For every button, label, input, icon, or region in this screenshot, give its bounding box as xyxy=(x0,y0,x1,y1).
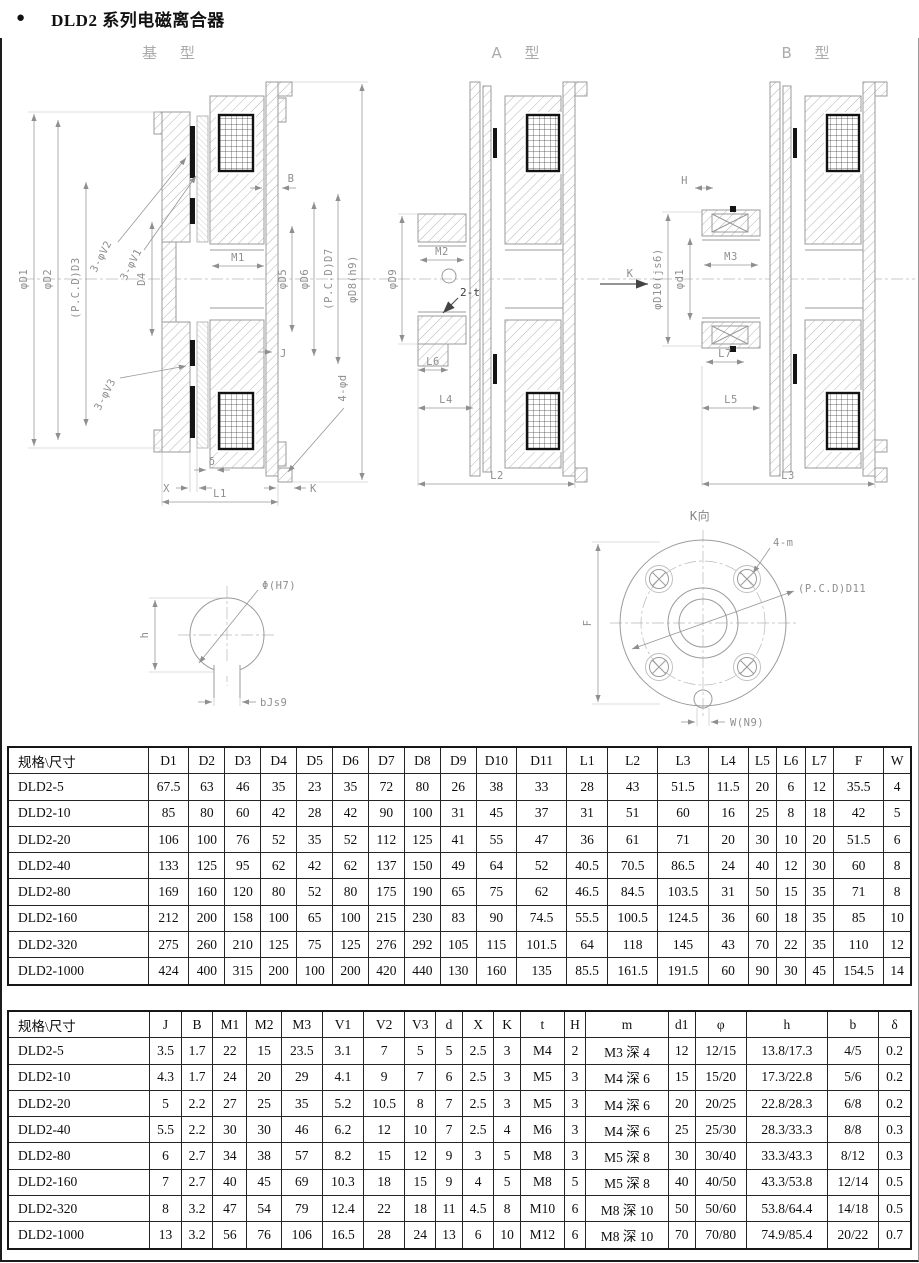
table-cell: 100 xyxy=(297,958,333,985)
table-cell: 3 xyxy=(564,1143,585,1169)
table-cell: 18 xyxy=(805,800,833,826)
dim-pcdD7: (P.C.D)D7 xyxy=(323,248,335,309)
column-header: D8 xyxy=(404,747,440,774)
table-cell: 4.1 xyxy=(322,1064,363,1090)
column-header: b xyxy=(827,1011,878,1038)
dim-L3: L3 xyxy=(781,470,795,482)
table-row: DLD2-8062.73438578.21512935M83M5 深 83030… xyxy=(8,1143,911,1169)
table-cell: 100 xyxy=(404,800,440,826)
table-cell: 20 xyxy=(708,826,748,852)
table-cell: 36 xyxy=(567,826,608,852)
dim-phiD9: φD9 xyxy=(387,269,399,289)
dimension-table-1: 规格\尺寸D1D2D3D4D5D6D7D8D9D10D11L1L2L3L4L5L… xyxy=(7,746,912,986)
table-cell: 55 xyxy=(476,826,516,852)
table-cell: 40.5 xyxy=(567,853,608,879)
table-cell: M10 xyxy=(520,1196,564,1222)
column-header: H xyxy=(564,1011,585,1038)
table-cell: 31 xyxy=(440,800,476,826)
table-cell: 137 xyxy=(368,853,404,879)
table-cell: 13 xyxy=(436,1222,463,1249)
table-cell: 80 xyxy=(189,800,225,826)
table-cell: 35 xyxy=(805,879,833,905)
table-cell: 90 xyxy=(748,958,776,985)
table-cell: 25/30 xyxy=(695,1117,746,1143)
column-header: W xyxy=(884,747,911,774)
table-cell: 2.7 xyxy=(181,1169,212,1195)
table-cell: 200 xyxy=(261,958,297,985)
table-cell: 9 xyxy=(436,1169,463,1195)
table-cell: 7 xyxy=(405,1064,436,1090)
table-cell: 40 xyxy=(668,1169,695,1195)
table-cell: 8/8 xyxy=(827,1117,878,1143)
shaft-bore-detail: Φ(H7) h bJs9 xyxy=(139,580,296,709)
table-cell: 3 xyxy=(462,1143,493,1169)
dim-phiD2: φD2 xyxy=(42,269,54,289)
table-cell: 42 xyxy=(297,853,333,879)
dim-4m: 4-m xyxy=(773,537,793,549)
column-header: D11 xyxy=(516,747,566,774)
table-cell: 30 xyxy=(213,1117,247,1143)
row-header: DLD2-320 xyxy=(8,1196,150,1222)
table-cell: 150 xyxy=(404,853,440,879)
dim-L5: L5 xyxy=(724,394,738,406)
table-cell: 2.2 xyxy=(181,1090,212,1116)
table-cell: 35 xyxy=(261,774,297,800)
table-cell: 115 xyxy=(476,932,516,958)
table-cell: 74.9/85.4 xyxy=(747,1222,828,1249)
table-cell: 47 xyxy=(213,1196,247,1222)
table-cell: 35 xyxy=(805,905,833,931)
table-cell: 120 xyxy=(225,879,261,905)
table-cell: 5.5 xyxy=(150,1117,181,1143)
table-cell: 12 xyxy=(777,853,805,879)
table-cell: 43 xyxy=(708,932,748,958)
column-header: D4 xyxy=(261,747,297,774)
table-cell: 7 xyxy=(150,1169,181,1195)
table-row: DLD2-1000133.2567610616.5282413610M126M8… xyxy=(8,1222,911,1249)
column-header: X xyxy=(462,1011,493,1038)
table-cell: 20 xyxy=(748,774,776,800)
table-cell: 90 xyxy=(476,905,516,931)
table-cell: 45 xyxy=(476,800,516,826)
table-row: DLD2-53.51.7221523.53.17552.53M42M3 深 41… xyxy=(8,1038,911,1064)
row-header: DLD2-1000 xyxy=(8,958,148,985)
table-cell: 110 xyxy=(834,932,884,958)
table-cell: 100 xyxy=(261,905,297,931)
table-cell: 125 xyxy=(189,853,225,879)
column-header: M1 xyxy=(213,1011,247,1038)
table-cell: 0.2 xyxy=(879,1090,911,1116)
table-cell: 40 xyxy=(748,853,776,879)
table-cell: 40/50 xyxy=(695,1169,746,1195)
column-header: D5 xyxy=(297,747,333,774)
column-header: V1 xyxy=(322,1011,363,1038)
table-cell: 210 xyxy=(225,932,261,958)
table-cell: 80 xyxy=(333,879,369,905)
column-header: t xyxy=(520,1011,564,1038)
column-header: L3 xyxy=(658,747,708,774)
table-cell: 6 xyxy=(462,1222,493,1249)
table-cell: 33.3/43.3 xyxy=(747,1143,828,1169)
table-cell: 24 xyxy=(213,1064,247,1090)
table-cell: 50 xyxy=(668,1196,695,1222)
table-cell: 14/18 xyxy=(827,1196,878,1222)
table-cell: M4 xyxy=(520,1038,564,1064)
dim-3phiV2: 3-φV2 xyxy=(88,239,115,275)
table-cell: 43.3/53.8 xyxy=(747,1169,828,1195)
table-cell: 86.5 xyxy=(658,853,708,879)
dim-pcdD3: (P.C.D)D3 xyxy=(70,257,82,318)
table-cell: 35 xyxy=(333,774,369,800)
table-cell: 31 xyxy=(708,879,748,905)
table-cell: 5/6 xyxy=(827,1064,878,1090)
table-cell: 0.3 xyxy=(879,1117,911,1143)
column-header: F xyxy=(834,747,884,774)
table-cell: 30 xyxy=(247,1117,281,1143)
table-cell: 12/14 xyxy=(827,1169,878,1195)
column-header: L7 xyxy=(805,747,833,774)
table-cell: 0.7 xyxy=(879,1222,911,1249)
table-cell: 30 xyxy=(805,853,833,879)
dim-D4: D4 xyxy=(136,272,148,286)
table-cell: 71 xyxy=(658,826,708,852)
table-cell: 12.4 xyxy=(322,1196,363,1222)
table-cell: 11.5 xyxy=(708,774,748,800)
table-cell: 230 xyxy=(404,905,440,931)
table-cell: 2.2 xyxy=(181,1117,212,1143)
table-cell: 71 xyxy=(834,879,884,905)
table-cell: 8.2 xyxy=(322,1143,363,1169)
dim-L7: L7 xyxy=(718,348,732,360)
table-cell: 22.8/28.3 xyxy=(747,1090,828,1116)
dim-phiD8: φD8(h9) xyxy=(347,255,359,303)
dim-L1: L1 xyxy=(213,488,227,500)
table-cell: 35 xyxy=(281,1090,322,1116)
dim-4phid: 4-φd xyxy=(337,374,349,401)
column-header: d1 xyxy=(668,1011,695,1038)
table-cell: 440 xyxy=(404,958,440,985)
table-cell: 0.2 xyxy=(879,1038,911,1064)
table-cell: 16 xyxy=(708,800,748,826)
table-cell: 5 xyxy=(564,1169,585,1195)
table-cell: 60 xyxy=(834,853,884,879)
table-cell: 47 xyxy=(516,826,566,852)
table-cell: 28 xyxy=(297,800,333,826)
table-cell: 200 xyxy=(189,905,225,931)
table-cell: 3.1 xyxy=(322,1038,363,1064)
table-cell: 75 xyxy=(476,879,516,905)
page-title: ● DLD2 系列电磁离合器 xyxy=(16,6,225,31)
dim-F: F xyxy=(582,620,594,627)
table-row: DLD2-405.52.23030466.2121072.54M63M4 深 6… xyxy=(8,1117,911,1143)
dim-WN9: W(N9) xyxy=(730,717,764,729)
table-cell: 70 xyxy=(668,1222,695,1249)
table-cell: 12 xyxy=(805,774,833,800)
row-header: DLD2-20 xyxy=(8,1090,150,1116)
table-cell: 43 xyxy=(607,774,657,800)
table-cell: 35 xyxy=(805,932,833,958)
table-cell: 60 xyxy=(748,905,776,931)
table-cell: 2.7 xyxy=(181,1143,212,1169)
table-cell: 46.5 xyxy=(567,879,608,905)
table-cell: 38 xyxy=(247,1143,281,1169)
table-cell: M4 深 6 xyxy=(586,1117,669,1143)
column-header: M3 xyxy=(281,1011,322,1038)
table-cell: 106 xyxy=(148,826,189,852)
table-cell: 62 xyxy=(261,853,297,879)
table-cell: 6 xyxy=(777,774,805,800)
table-cell: 60 xyxy=(708,958,748,985)
table-cell: M4 深 6 xyxy=(586,1090,669,1116)
table-row: DLD2-2052.22725355.210.5872.53M53M4 深 62… xyxy=(8,1090,911,1116)
table-cell: 315 xyxy=(225,958,261,985)
table-cell: 12 xyxy=(884,932,911,958)
table-cell: 51 xyxy=(607,800,657,826)
dim-K-gap: K xyxy=(310,483,317,495)
table-cell: 4 xyxy=(462,1169,493,1195)
table-cell: 51.5 xyxy=(658,774,708,800)
table-cell: 8 xyxy=(405,1090,436,1116)
dim-M3: M3 xyxy=(724,251,738,263)
table-cell: 200 xyxy=(333,958,369,985)
table-cell: M4 深 6 xyxy=(586,1064,669,1090)
table-cell: 15 xyxy=(405,1169,436,1195)
table-cell: 2.5 xyxy=(462,1038,493,1064)
table-cell: 0.5 xyxy=(879,1196,911,1222)
column-header: L5 xyxy=(748,747,776,774)
table-cell: 75 xyxy=(297,932,333,958)
a-type-drawing: A 型 xyxy=(387,44,660,488)
table-cell: 72 xyxy=(368,774,404,800)
table-row: DLD2-20106100765235521121254155473661712… xyxy=(8,826,911,852)
table-cell: 69 xyxy=(281,1169,322,1195)
k-view-title: K向 xyxy=(690,508,710,523)
table-cell: 42 xyxy=(834,800,884,826)
table-cell: M8 xyxy=(520,1143,564,1169)
table-cell: 51.5 xyxy=(834,826,884,852)
row-header: DLD2-10 xyxy=(8,1064,150,1090)
dim-M2: M2 xyxy=(435,246,449,258)
row-header: DLD2-40 xyxy=(8,1117,150,1143)
b-type-geometry xyxy=(660,82,915,482)
table-cell: 36 xyxy=(708,905,748,931)
table-row: DLD2-8016916012080528017519065756246.584… xyxy=(8,879,911,905)
table-cell: 12/15 xyxy=(695,1038,746,1064)
row-header: DLD2-80 xyxy=(8,1143,150,1169)
table-cell: 67.5 xyxy=(148,774,189,800)
table-cell: 6 xyxy=(564,1222,585,1249)
column-header: D9 xyxy=(440,747,476,774)
table-cell: 3 xyxy=(564,1117,585,1143)
column-header: V2 xyxy=(364,1011,405,1038)
table-cell: 158 xyxy=(225,905,261,931)
table-cell: 6 xyxy=(436,1064,463,1090)
row-header: DLD2-20 xyxy=(8,826,148,852)
table-cell: M5 深 8 xyxy=(586,1169,669,1195)
table-cell: 54 xyxy=(247,1196,281,1222)
column-header: D1 xyxy=(148,747,189,774)
column-header: h xyxy=(747,1011,828,1038)
table-cell: 90 xyxy=(368,800,404,826)
table-cell: 260 xyxy=(189,932,225,958)
table-cell: 100 xyxy=(333,905,369,931)
table-cell: 28 xyxy=(364,1222,405,1249)
row-header: DLD2-40 xyxy=(8,853,148,879)
table-cell: 3.2 xyxy=(181,1222,212,1249)
dim-phiD5: φD5 xyxy=(277,269,289,289)
row-header: DLD2-5 xyxy=(8,774,148,800)
table-cell: 3 xyxy=(494,1090,521,1116)
table-cell: 175 xyxy=(368,879,404,905)
row-header: DLD2-10 xyxy=(8,800,148,826)
table-cell: 10 xyxy=(405,1117,436,1143)
table-cell: 6 xyxy=(564,1196,585,1222)
table-cell: 3 xyxy=(564,1064,585,1090)
page-title-text: DLD2 系列电磁离合器 xyxy=(51,6,225,31)
table-cell: 13 xyxy=(150,1222,181,1249)
table-cell: 22 xyxy=(213,1038,247,1064)
table-cell: 9 xyxy=(436,1143,463,1169)
table-cell: 52 xyxy=(333,826,369,852)
row-header: DLD2-160 xyxy=(8,1169,150,1195)
column-header: φ xyxy=(695,1011,746,1038)
column-header: 规格\尺寸 xyxy=(8,1011,150,1038)
dim-phiD10: φD10(js6) xyxy=(652,248,664,309)
dim-phiD1: φD1 xyxy=(18,269,30,289)
column-header: D3 xyxy=(225,747,261,774)
b-type-title: B 型 xyxy=(781,44,838,62)
table-row: DLD2-10004244003152001002004204401301601… xyxy=(8,958,911,985)
table-cell: 23.5 xyxy=(281,1038,322,1064)
table-cell: 37 xyxy=(516,800,566,826)
table-cell: 5 xyxy=(436,1038,463,1064)
table-cell: 64 xyxy=(476,853,516,879)
table-cell: 7 xyxy=(364,1038,405,1064)
table-cell: 13.8/17.3 xyxy=(747,1038,828,1064)
table-cell: 8 xyxy=(884,853,911,879)
table-cell: 160 xyxy=(476,958,516,985)
table-row: DLD2-16072.740456910.31815945M85M5 深 840… xyxy=(8,1169,911,1195)
header-row: 规格\尺寸D1D2D3D4D5D6D7D8D9D10D11L1L2L3L4L5L… xyxy=(8,747,911,774)
table-cell: 24 xyxy=(405,1222,436,1249)
table-cell: 85.5 xyxy=(567,958,608,985)
table-cell: 420 xyxy=(368,958,404,985)
table-cell: 12 xyxy=(668,1038,695,1064)
column-header: L2 xyxy=(607,747,657,774)
table-cell: 18 xyxy=(405,1196,436,1222)
table-cell: 20 xyxy=(247,1064,281,1090)
table-cell: 1.7 xyxy=(181,1038,212,1064)
table-cell: 83 xyxy=(440,905,476,931)
table-cell: 1.7 xyxy=(181,1064,212,1090)
table-cell: 3 xyxy=(564,1090,585,1116)
dim-M1: M1 xyxy=(231,252,245,264)
table-cell: 6.2 xyxy=(322,1117,363,1143)
table-cell: 85 xyxy=(834,905,884,931)
table-cell: 14 xyxy=(884,958,911,985)
table-cell: 50 xyxy=(748,879,776,905)
table-cell: 30 xyxy=(777,958,805,985)
table-cell: 74.5 xyxy=(516,905,566,931)
table-cell: 2.5 xyxy=(462,1090,493,1116)
table-cell: 52 xyxy=(516,853,566,879)
table-cell: 6 xyxy=(884,826,911,852)
dim-H: H xyxy=(681,175,688,187)
column-header: D10 xyxy=(476,747,516,774)
row-header: DLD2-5 xyxy=(8,1038,150,1064)
table-cell: 5 xyxy=(494,1169,521,1195)
column-header: D6 xyxy=(333,747,369,774)
table-cell: 4.3 xyxy=(150,1064,181,1090)
table-cell: 8/12 xyxy=(827,1143,878,1169)
table-cell: 5 xyxy=(150,1090,181,1116)
table-cell: 18 xyxy=(777,905,805,931)
dim-2t: 2-t xyxy=(460,286,480,299)
table-cell: 62 xyxy=(516,879,566,905)
table-cell: 25 xyxy=(668,1117,695,1143)
table-cell: 70/80 xyxy=(695,1222,746,1249)
table-cell: 95 xyxy=(225,853,261,879)
table-cell: 5 xyxy=(405,1038,436,1064)
a-type-title: A 型 xyxy=(491,44,548,62)
table-cell: 42 xyxy=(333,800,369,826)
table-cell: 52 xyxy=(261,826,297,852)
table-cell: 4.5 xyxy=(462,1196,493,1222)
table-cell: M5 xyxy=(520,1064,564,1090)
table-row: DLD2-567.563463523357280263833284351.511… xyxy=(8,774,911,800)
table-cell: 25 xyxy=(247,1090,281,1116)
table-cell: 26 xyxy=(440,774,476,800)
table-cell: 55.5 xyxy=(567,905,608,931)
column-header: δ xyxy=(879,1011,911,1038)
table-cell: M5 xyxy=(520,1090,564,1116)
table-cell: 28.3/33.3 xyxy=(747,1117,828,1143)
column-header: d xyxy=(436,1011,463,1038)
table-cell: 106 xyxy=(281,1222,322,1249)
table-cell: 65 xyxy=(440,879,476,905)
row-header: DLD2-320 xyxy=(8,932,148,958)
table-cell: 33 xyxy=(516,774,566,800)
table-cell: 85 xyxy=(148,800,189,826)
table-cell: 56 xyxy=(213,1222,247,1249)
table-cell: 145 xyxy=(658,932,708,958)
table-cell: 29 xyxy=(281,1064,322,1090)
table-cell: 5.2 xyxy=(322,1090,363,1116)
table-cell: 100 xyxy=(189,826,225,852)
table-row: DLD2-104.31.72420294.19762.53M53M4 深 615… xyxy=(8,1064,911,1090)
table-cell: 215 xyxy=(368,905,404,931)
table-row: DLD2-32027526021012575125276292105115101… xyxy=(8,932,911,958)
table-cell: 118 xyxy=(607,932,657,958)
k-view-drawing: K向 4-m (P.C.D)D11 F xyxy=(582,508,866,729)
table-row: DLD2-401331259562426213715049645240.570.… xyxy=(8,853,911,879)
table-cell: 101.5 xyxy=(516,932,566,958)
table-cell: 15 xyxy=(247,1038,281,1064)
table-cell: 61 xyxy=(607,826,657,852)
table-cell: 8 xyxy=(884,879,911,905)
column-header: 规格\尺寸 xyxy=(8,747,148,774)
table-cell: 22 xyxy=(777,932,805,958)
table-cell: 60 xyxy=(225,800,261,826)
b-type-drawing: B 型 xyxy=(652,44,915,488)
table-cell: 133 xyxy=(148,853,189,879)
table-cell: 41 xyxy=(440,826,476,852)
table-cell: 5 xyxy=(494,1143,521,1169)
table-cell: 3.5 xyxy=(150,1038,181,1064)
column-header: J xyxy=(150,1011,181,1038)
table-cell: 191.5 xyxy=(658,958,708,985)
catalog-page: ● DLD2 系列电磁离合器 基 型 xyxy=(0,0,919,1263)
